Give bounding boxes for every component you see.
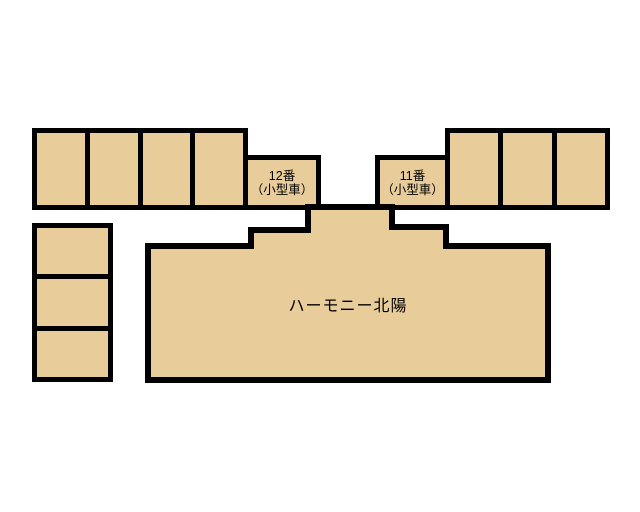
facility-map[interactable]: 12番 （小型車） 11番 （小型車） ハーモニー北陽 (0, 0, 640, 512)
building-outline (148, 207, 548, 380)
building-footprint (0, 0, 640, 512)
building-name-label: ハーモニー北陽 (148, 297, 548, 317)
